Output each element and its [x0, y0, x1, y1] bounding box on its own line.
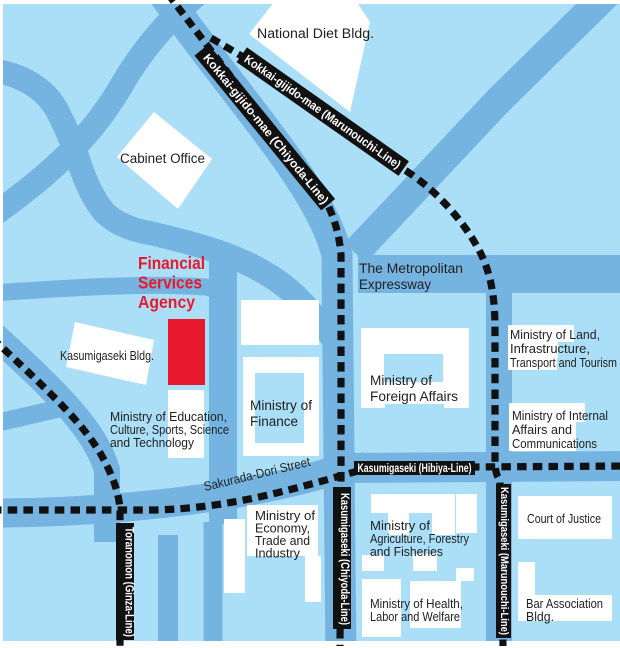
svg-text:Kasumigaseki Bldg.: Kasumigaseki Bldg. [60, 348, 154, 363]
svg-text:Ministry of Education,: Ministry of Education, [110, 410, 227, 424]
svg-text:Bar Association: Bar Association [526, 597, 603, 611]
svg-text:and Fisheries: and Fisheries [370, 545, 443, 559]
svg-text:Cabinet Office: Cabinet Office [120, 151, 205, 166]
svg-text:Communications: Communications [512, 437, 597, 451]
svg-text:Financial: Financial [138, 253, 205, 273]
svg-text:Culture, Sports, Science: Culture, Sports, Science [110, 423, 229, 437]
svg-text:Ministry of: Ministry of [370, 373, 432, 388]
svg-text:Ministry of Health,: Ministry of Health, [370, 597, 463, 611]
svg-text:National Diet Bldg.: National Diet Bldg. [257, 26, 374, 41]
svg-text:Ministry of Internal: Ministry of Internal [512, 409, 608, 423]
svg-text:The Metropolitan: The Metropolitan [359, 261, 463, 276]
svg-text:and Technology: and Technology [110, 436, 195, 450]
svg-text:Infrastructure,: Infrastructure, [510, 342, 590, 356]
svg-text:Bldg.: Bldg. [526, 610, 554, 624]
svg-text:Agriculture, Forestry: Agriculture, Forestry [370, 532, 470, 546]
svg-text:Kasumigaseki (Hibiya-Line): Kasumigaseki (Hibiya-Line) [358, 463, 472, 475]
svg-text:Services: Services [138, 273, 202, 293]
svg-text:Ministry of: Ministry of [250, 398, 312, 413]
svg-text:Kasumigaseki (Chiyoda-Line): Kasumigaseki (Chiyoda-Line) [338, 493, 350, 625]
svg-text:Ministry of Land,: Ministry of Land, [510, 328, 600, 342]
svg-text:Kasumigaseki (Marunouchi-Line): Kasumigaseki (Marunouchi-Line) [498, 487, 510, 635]
svg-text:Ministry of: Ministry of [370, 519, 431, 533]
svg-text:Court of Justice: Court of Justice [527, 511, 601, 526]
svg-text:Toranomon (Ginza-Line): Toranomon (Ginza-Line) [123, 527, 135, 637]
svg-text:Labor and Welfare: Labor and Welfare [370, 610, 460, 624]
svg-text:Affairs and: Affairs and [512, 423, 572, 437]
svg-text:Transport and Tourism: Transport and Tourism [510, 356, 617, 370]
svg-text:Foreign Affairs: Foreign Affairs [370, 389, 458, 404]
svg-text:Industry: Industry [255, 547, 301, 561]
svg-text:Agency: Agency [138, 292, 195, 312]
svg-text:Expressway: Expressway [359, 277, 431, 292]
svg-text:Finance: Finance [250, 414, 298, 429]
